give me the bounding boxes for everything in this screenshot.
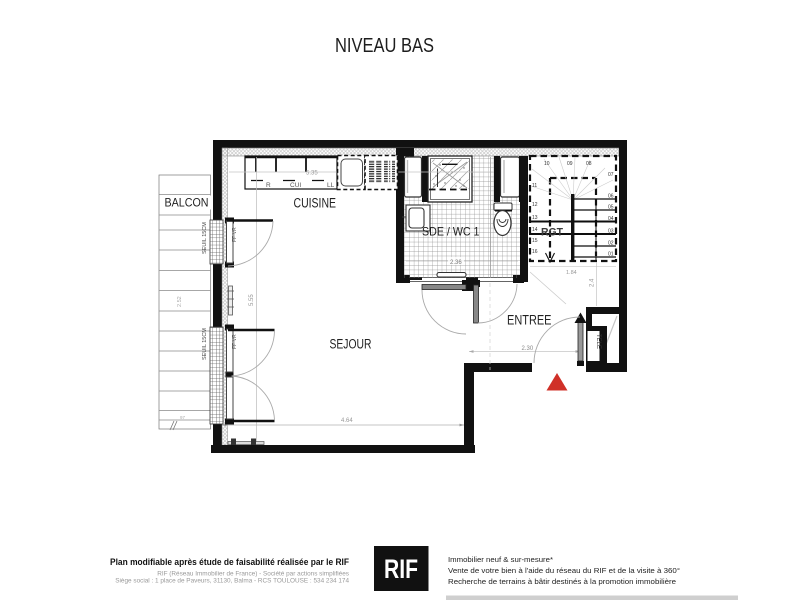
- svg-text:12: 12: [532, 202, 538, 208]
- svg-text:TELE: TELE: [595, 334, 601, 349]
- svg-text:SEUIL 15CM: SEUIL 15CM: [202, 328, 208, 360]
- svg-text:03: 03: [608, 229, 614, 235]
- svg-text:4.64: 4.64: [341, 418, 353, 424]
- svg-text:2.52: 2.52: [177, 296, 183, 307]
- svg-text:97: 97: [180, 415, 186, 420]
- svg-text:15: 15: [532, 238, 538, 244]
- svg-text:1.84: 1.84: [566, 270, 577, 276]
- svg-text:05: 05: [608, 205, 614, 211]
- svg-text:04: 04: [608, 216, 614, 222]
- svg-text:13: 13: [532, 215, 538, 221]
- svg-text:16: 16: [532, 249, 538, 255]
- svg-text:RIF: RIF: [384, 554, 418, 584]
- svg-text:2.36: 2.36: [450, 260, 462, 266]
- svg-text:Immobilier neuf & sur-mesure*: Immobilier neuf & sur-mesure*: [448, 555, 553, 564]
- svg-text:CUISINE: CUISINE: [294, 196, 337, 211]
- svg-text:08: 08: [586, 161, 592, 167]
- svg-text:07: 07: [608, 172, 614, 178]
- svg-text:01: 01: [608, 252, 614, 258]
- svg-text:Recherche de terrains à bâtir: Recherche de terrains à bâtir destinés à…: [448, 577, 676, 586]
- svg-text:FF-VR: FF-VR: [232, 227, 238, 242]
- svg-text:RGT: RGT: [541, 227, 563, 239]
- svg-text:Plan modifiable après étude de: Plan modifiable après étude de faisabili…: [110, 557, 349, 567]
- svg-text:RIF (Réseau Immobilier de Fra: RIF (Réseau Immobilier de France) - Soci…: [157, 571, 349, 578]
- svg-text:BALCON: BALCON: [165, 196, 209, 210]
- svg-text:CUI: CUI: [290, 182, 301, 189]
- svg-text:R: R: [266, 182, 271, 189]
- svg-text:09: 09: [567, 161, 573, 167]
- svg-text:02: 02: [608, 241, 614, 247]
- svg-text:ENTREE: ENTREE: [507, 312, 552, 328]
- svg-text:SEUIL 15CM: SEUIL 15CM: [202, 222, 208, 254]
- svg-text:2.30: 2.30: [522, 346, 534, 352]
- svg-text:SDE / WC 1: SDE / WC 1: [422, 225, 480, 239]
- svg-text:10: 10: [544, 161, 550, 167]
- svg-text:11: 11: [532, 183, 537, 189]
- svg-text:FF-VR: FF-VR: [232, 334, 238, 349]
- svg-text:5.35: 5.35: [306, 171, 318, 177]
- svg-text:06: 06: [608, 194, 614, 200]
- svg-text:Siège social : 1 place de Pave: Siège social : 1 place de Paveurs, 31130…: [115, 578, 349, 585]
- svg-text:Vente de votre bien à l'aide d: Vente de votre bien à l'aide du réseau d…: [448, 566, 680, 575]
- svg-text:NIVEAU BAS: NIVEAU BAS: [335, 34, 434, 57]
- svg-text:5.55: 5.55: [249, 294, 255, 306]
- svg-text:2.4: 2.4: [590, 278, 596, 287]
- svg-text:SEJOUR: SEJOUR: [330, 337, 372, 352]
- svg-text:LL: LL: [327, 182, 335, 189]
- svg-text:14: 14: [532, 227, 538, 233]
